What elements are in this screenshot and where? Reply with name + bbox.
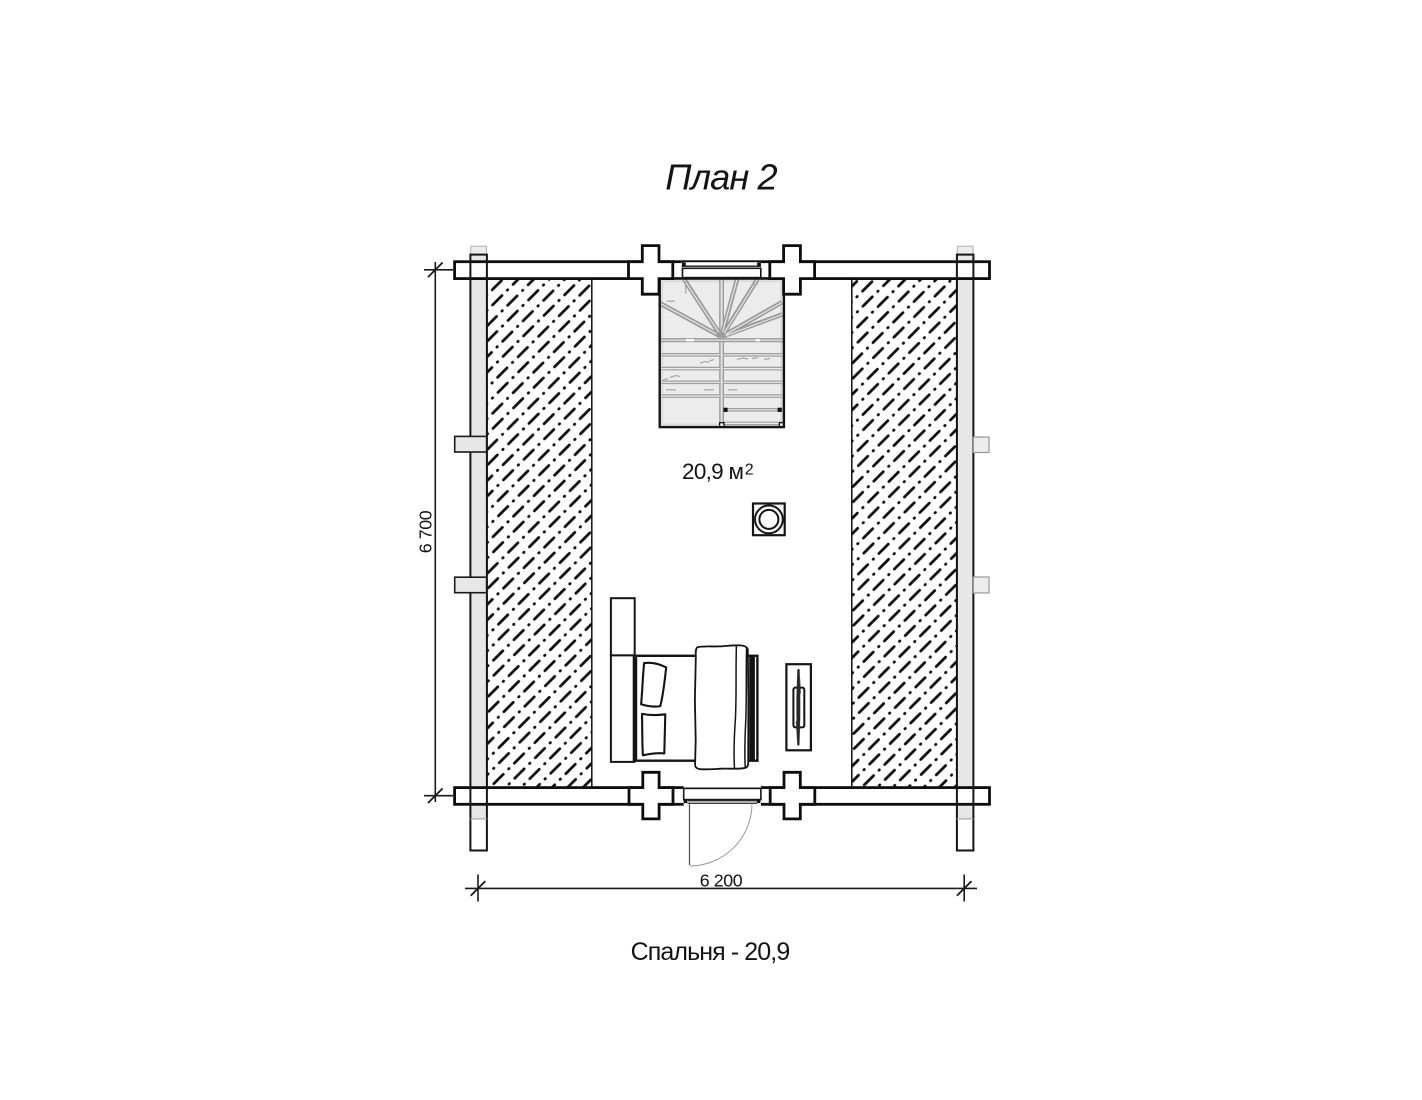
svg-text:6 700: 6 700 [416,510,436,553]
svg-text:20,9 м: 20,9 м [682,459,743,484]
svg-text:6 200: 6 200 [700,870,743,890]
svg-text:Спальня - 20,9: Спальня - 20,9 [631,938,790,966]
svg-text:План 2: План 2 [665,156,777,197]
svg-text:2: 2 [745,462,754,479]
